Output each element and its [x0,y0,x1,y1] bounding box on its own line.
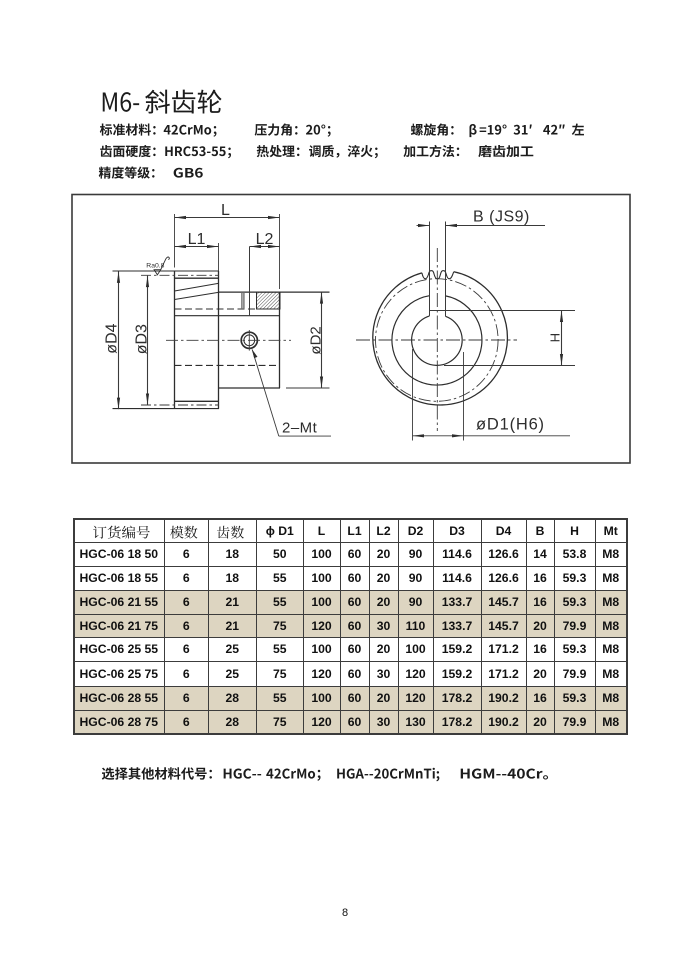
svg-text:øD1(H6): øD1(H6) [476,416,545,434]
svg-text:B (JS9): B (JS9) [473,209,530,226]
svg-text:H: H [547,333,562,342]
svg-text:øD3: øD3 [133,324,150,354]
svg-text:øD2: øD2 [308,326,325,354]
svg-text:L: L [221,202,230,219]
svg-text:L2: L2 [256,231,274,248]
svg-text:L1: L1 [188,231,206,248]
svg-text:Ra0.8: Ra0.8 [146,263,164,270]
svg-text:2–Mt: 2–Mt [282,420,318,437]
svg-text:øD4: øD4 [104,323,121,353]
